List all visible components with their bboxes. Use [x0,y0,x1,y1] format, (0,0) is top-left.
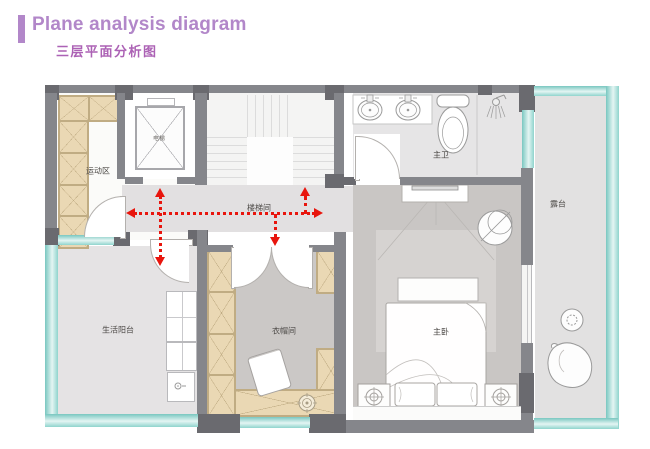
room-label-elevator: 电梯 [153,134,165,143]
wall-pier [45,228,59,246]
wall [177,177,195,184]
arrowhead-down [270,237,280,246]
stairs-left-flight [207,137,247,185]
wall [344,420,534,433]
page-subtitle: 三层平面分析图 [56,41,158,60]
toilet-icon [437,95,469,153]
x-cell [208,375,235,416]
window-glass [522,110,534,168]
wall [207,245,233,252]
shower-head-icon [487,95,506,119]
x-cell [59,121,88,153]
arrowhead-up [300,187,310,196]
room-label-master-bath: 主卫 [433,150,449,161]
tv-cabinet [402,185,468,202]
bedroom-furniture [353,185,523,420]
glass-wall-balcony-bottom [45,414,198,427]
arrowhead-up [155,188,165,197]
x-cell [235,390,345,416]
title-accent-bar [18,15,25,43]
wall [334,93,344,177]
cabinet-divider [182,343,183,370]
elevator-counterweight [147,98,175,106]
x-cell [59,153,88,185]
x-cell [89,96,119,121]
wall [45,93,57,235]
bed-icon [386,303,486,408]
lounge-chair-icon [548,343,592,388]
bed-platform-strip [353,406,521,421]
flow-arrow-vertical-cloakroom [274,214,277,238]
ceiling-lamp-icon [296,392,318,414]
wall [400,177,523,185]
x-cell [208,334,235,375]
room-label-terrace: 露台 [550,199,566,210]
arrowhead-left [126,208,135,218]
armchair-icon [478,210,512,245]
x-cell [208,292,235,333]
balcony-cabinet-upper [166,291,197,342]
room-label-activity-area: 运动区 [86,166,110,177]
wall-pier [325,174,344,188]
wardrobe-cloakroom-bottom [234,389,346,417]
wall [125,177,143,184]
side-table-icon [561,309,583,331]
glass-wall-terrace-bottom [534,418,618,429]
page-title: Plane analysis diagram [32,14,247,36]
room-label-cloakroom: 衣帽间 [272,326,296,337]
room-label-living-balcony: 生活阳台 [102,325,134,336]
window-glass [240,417,310,428]
terrace-furniture [534,300,610,410]
bed-bench [398,278,478,301]
wall [334,232,346,422]
wall [117,93,125,179]
balcony-cabinet-lower [166,342,197,371]
sink-drain-icon [172,380,188,392]
wall [195,93,207,185]
wall-pier [519,373,534,413]
stairs-landing [247,137,293,185]
wall-pier [478,85,492,95]
arrowhead-down [155,257,165,266]
flow-arrow-vertical-stairs [304,196,307,214]
wall-pier [197,414,240,433]
x-cell [59,185,88,217]
floor-hallway-opening [334,186,354,232]
room-label-master-bedroom: 主卧 [433,327,449,338]
wall-pier [519,85,535,112]
glass-wall-balcony-left [45,245,58,427]
room-label-stairwell: 楼梯间 [247,203,271,214]
stairs-top-flight [247,95,293,137]
cabinet-divider [167,317,196,318]
arrowhead-right [314,208,323,218]
flow-arrow-vertical-left [159,196,162,258]
wall [521,168,533,265]
cabinet-activity-top [58,95,119,122]
x-cell [59,96,89,121]
terrace-door-window [521,265,532,343]
window-mullion [527,265,528,343]
wall-pier [309,414,346,433]
wall [197,230,207,426]
glass-wall-terrace-right [606,86,619,429]
